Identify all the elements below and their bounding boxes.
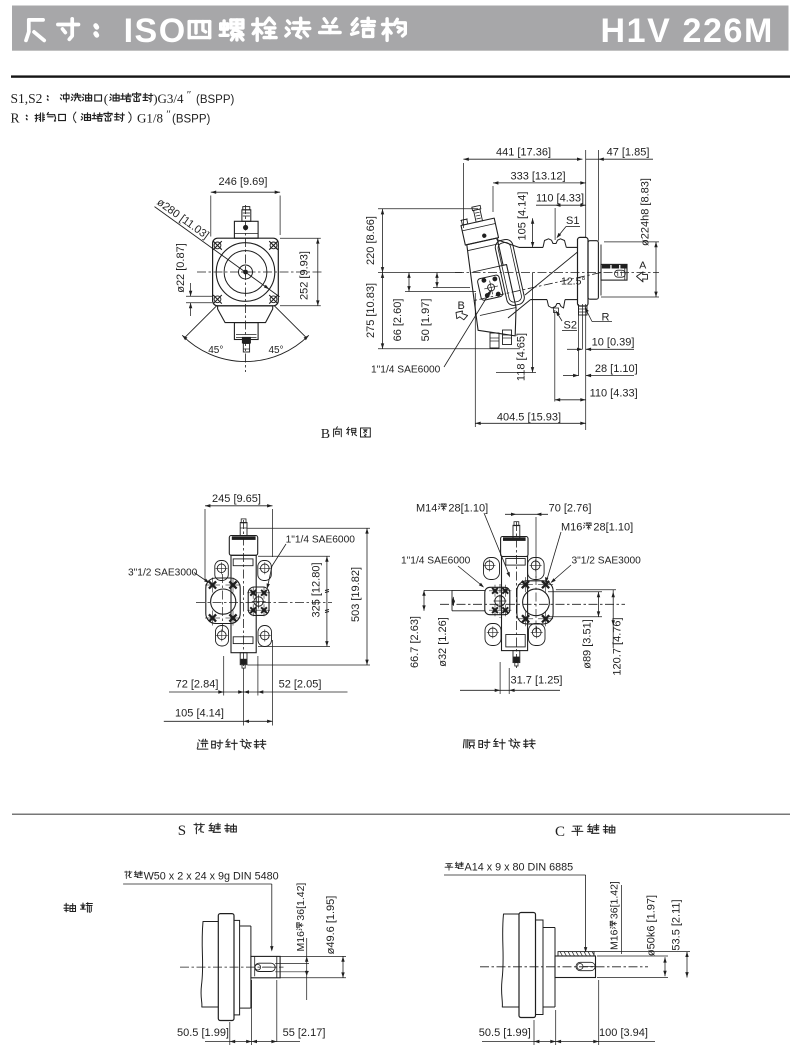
svg-text:B: B <box>458 300 465 312</box>
svg-text:(BSPP): (BSPP) <box>172 114 211 126</box>
svg-text:100 [3.94]: 100 [3.94] <box>599 1027 648 1039</box>
svg-text:ø49.6 [1.95]: ø49.6 [1.95] <box>325 896 337 955</box>
svg-text:28[1.10]: 28[1.10] <box>593 522 633 534</box>
svg-text:246 [9.69]: 246 [9.69] <box>219 176 268 188</box>
svg-text:118 [4.65]: 118 [4.65] <box>516 333 528 381</box>
svg-text:275 [10.83]: 275 [10.83] <box>365 283 377 338</box>
svg-text:66 [2.60]: 66 [2.60] <box>392 299 404 342</box>
svg-text:110 [4.33]: 110 [4.33] <box>536 193 584 205</box>
svg-text:105 [4.14]: 105 [4.14] <box>175 708 224 720</box>
svg-text:A14 x 9 x 80 DIN 6885: A14 x 9 x 80 DIN 6885 <box>465 862 574 874</box>
svg-text:47 [1.85]: 47 [1.85] <box>607 147 650 159</box>
svg-text:ø89 [3.51]: ø89 [3.51] <box>582 619 594 669</box>
svg-text:3"1/2 SAE3000: 3"1/2 SAE3000 <box>572 556 642 567</box>
svg-text:H1V 226M: H1V 226M <box>601 12 774 50</box>
svg-text:503 [19.82]: 503 [19.82] <box>350 567 362 622</box>
svg-text:3"1/2 SAE3000: 3"1/2 SAE3000 <box>128 568 198 579</box>
svg-text:M14: M14 <box>416 503 437 515</box>
svg-text:″: ″ <box>187 89 192 101</box>
svg-text:50.5 [1.99]: 50.5 [1.99] <box>479 1027 531 1039</box>
svg-text:52 [2.05]: 52 [2.05] <box>279 679 322 691</box>
svg-text:W50 x 2 x 24 x 9g DIN 5480: W50 x 2 x 24 x 9g DIN 5480 <box>144 871 279 883</box>
svg-text:45°: 45° <box>268 345 283 356</box>
svg-text:ø224h8 [8.83]: ø224h8 [8.83] <box>640 178 652 246</box>
svg-text:1"1/4 SAE6000: 1"1/4 SAE6000 <box>371 365 441 376</box>
svg-text:70 [2.76]: 70 [2.76] <box>549 503 592 515</box>
svg-text:S2: S2 <box>564 320 577 332</box>
svg-text:50 [1.97]: 50 [1.97] <box>420 299 432 342</box>
svg-text:S1,S2: S1,S2 <box>11 91 43 106</box>
svg-text:″: ″ <box>166 109 171 121</box>
svg-text:ISO: ISO <box>124 12 187 50</box>
svg-text:)G3/4: )G3/4 <box>153 91 184 106</box>
svg-text:45°: 45° <box>208 345 223 356</box>
svg-text:28 [1.10]: 28 [1.10] <box>595 363 638 375</box>
svg-text:ø50k6 [1.97]: ø50k6 [1.97] <box>646 895 658 956</box>
svg-text:(: ( <box>104 91 108 106</box>
svg-text:110 [4.33]: 110 [4.33] <box>590 388 638 400</box>
svg-text:72 [2.84]: 72 [2.84] <box>176 679 219 691</box>
svg-text:B: B <box>321 427 330 442</box>
svg-text:S1: S1 <box>566 215 579 227</box>
svg-text:333 [13.12]: 333 [13.12] <box>510 171 565 183</box>
svg-text:50.5 [1.99]: 50.5 [1.99] <box>177 1027 229 1039</box>
svg-text:252 [9.93]: 252 [9.93] <box>298 251 310 300</box>
svg-text:(BSPP): (BSPP) <box>196 94 235 106</box>
svg-text:ø32 [1.26]: ø32 [1.26] <box>437 617 449 667</box>
svg-text:ø22 [0.87]: ø22 [0.87] <box>175 243 187 293</box>
svg-text:S: S <box>178 823 186 839</box>
svg-text:66.7 [2.63]: 66.7 [2.63] <box>409 616 421 668</box>
svg-text:1"1/4 SAE6000: 1"1/4 SAE6000 <box>401 556 471 567</box>
svg-text:55 [2.17]: 55 [2.17] <box>283 1027 326 1039</box>
svg-text:105 [4.14]: 105 [4.14] <box>517 192 529 241</box>
svg-text:36[1.42]: 36[1.42] <box>609 881 621 919</box>
svg-text:M16: M16 <box>561 522 582 534</box>
svg-text:C: C <box>555 824 565 840</box>
svg-text:G1/8: G1/8 <box>137 111 163 126</box>
svg-text:36[1.42]: 36[1.42] <box>295 883 307 921</box>
svg-text:R: R <box>11 111 20 126</box>
svg-text:M16: M16 <box>295 931 307 952</box>
svg-text:325 [12.80]: 325 [12.80] <box>310 562 322 617</box>
svg-text:220 [8.66]: 220 [8.66] <box>365 216 377 265</box>
svg-text:53.5 [2.11]: 53.5 [2.11] <box>671 899 683 950</box>
svg-text:31.7 [1.25]: 31.7 [1.25] <box>511 675 563 687</box>
svg-text:10 [0.39]: 10 [0.39] <box>592 337 635 349</box>
svg-text:M16: M16 <box>609 929 621 950</box>
svg-text:441 [17.36]: 441 [17.36] <box>496 147 551 159</box>
svg-text:245 [9.65]: 245 [9.65] <box>212 493 261 505</box>
svg-text:A: A <box>639 260 646 272</box>
svg-text:12.5°: 12.5° <box>561 276 586 288</box>
svg-text:404.5 [15.93]: 404.5 [15.93] <box>497 412 561 424</box>
svg-text:28[1.10]: 28[1.10] <box>448 503 488 515</box>
svg-text:1"1/4 SAE6000: 1"1/4 SAE6000 <box>286 535 356 546</box>
